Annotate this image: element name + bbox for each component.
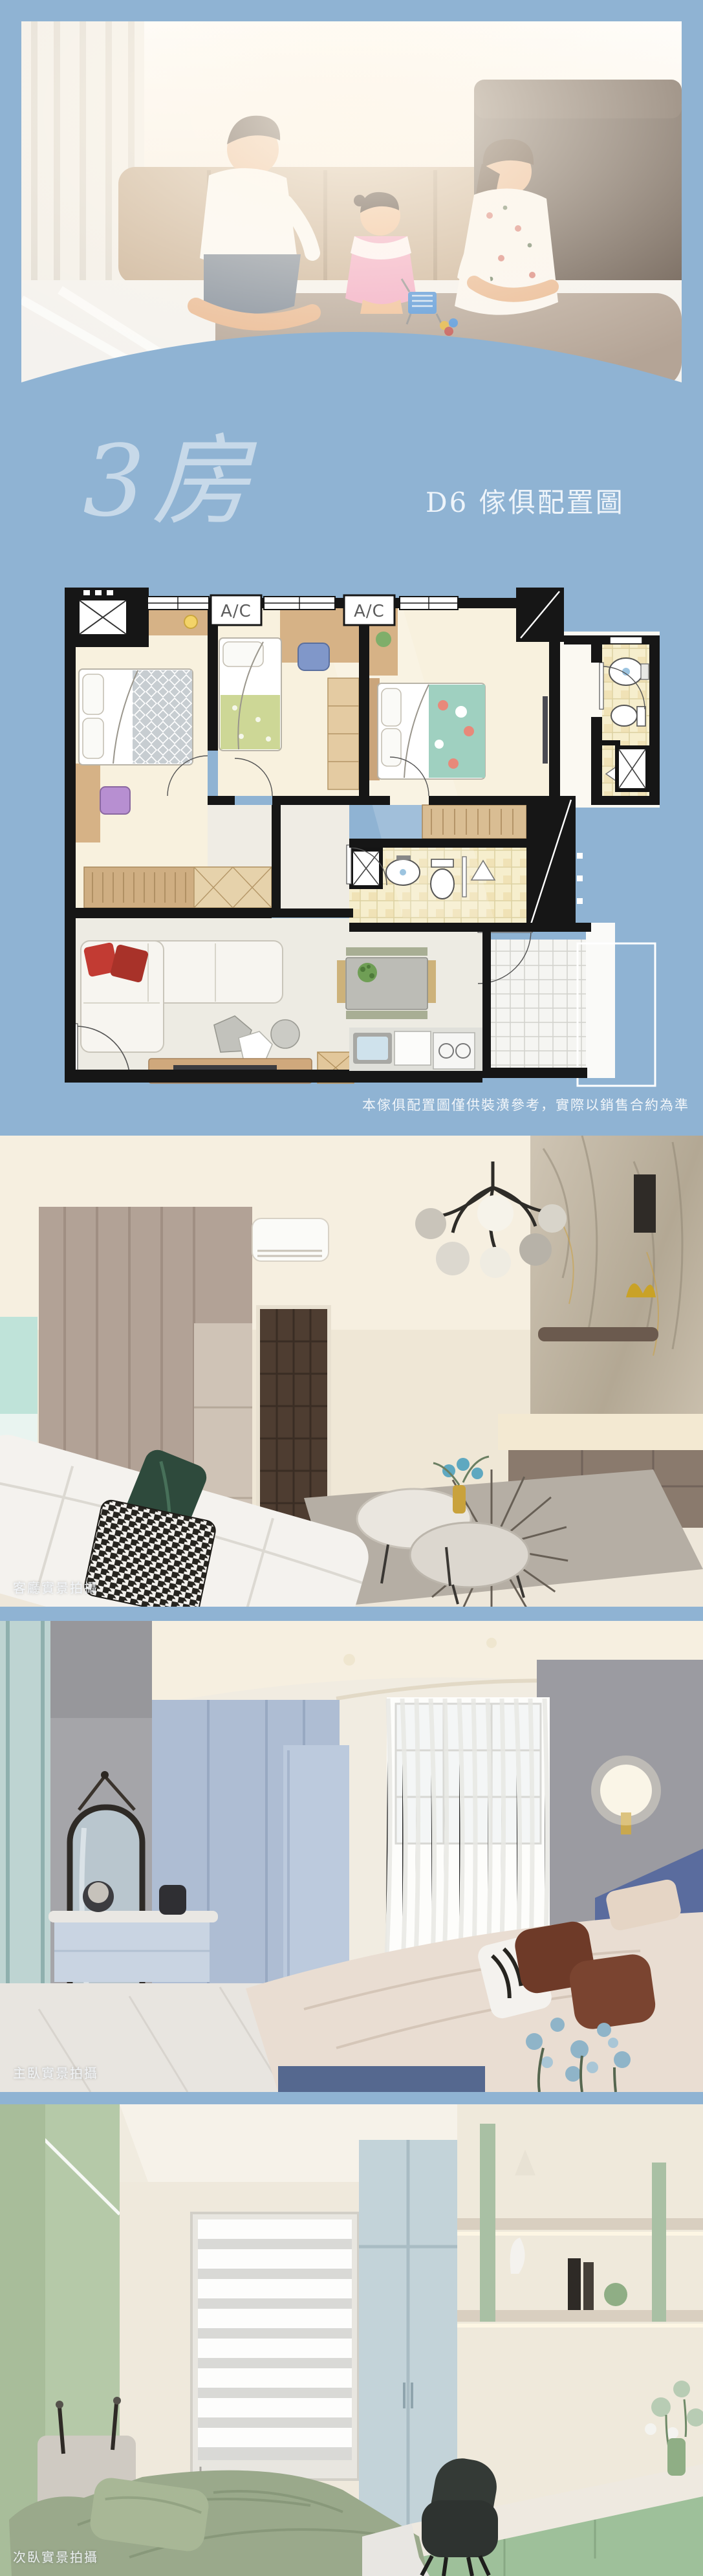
ac-box-1: A/C — [211, 595, 261, 625]
section-title: 3房 — [83, 432, 257, 531]
brochure-page: 3房 D6 傢俱配置圖 — [0, 0, 703, 2576]
floor-plan-drawing: A/C A/C — [41, 581, 660, 1087]
floor-plan: A/C A/C — [41, 581, 660, 1087]
ac-box-2: A/C — [344, 595, 395, 625]
master-bedroom-photo: 主臥實景拍攝 — [0, 1621, 703, 2092]
secondary-bedroom-photo: 次臥實景拍攝 — [0, 2104, 703, 2576]
photo-caption: 主臥實景拍攝 — [13, 2063, 98, 2082]
photo-caption: 客廳實景拍攝 — [13, 1578, 98, 1596]
hero-family-photo — [21, 21, 682, 388]
photo-caption: 次臥實景拍攝 — [13, 2547, 98, 2566]
living-room-illustration — [0, 1136, 703, 1607]
ac-label: A/C — [221, 602, 252, 621]
section-subtitle: D6 傢俱配置圖 — [426, 489, 625, 516]
floorplan-disclaimer: 本傢俱配置圖僅供裝潢參考，實際以銷售合約為準 — [362, 1095, 689, 1114]
ac-label: A/C — [354, 602, 385, 621]
master-bedroom-illustration — [0, 1621, 703, 2092]
living-room-photo: 客廳實景拍攝 — [0, 1136, 703, 1607]
secondary-bedroom-illustration — [0, 2104, 703, 2576]
family-photo-illustration — [21, 21, 682, 388]
